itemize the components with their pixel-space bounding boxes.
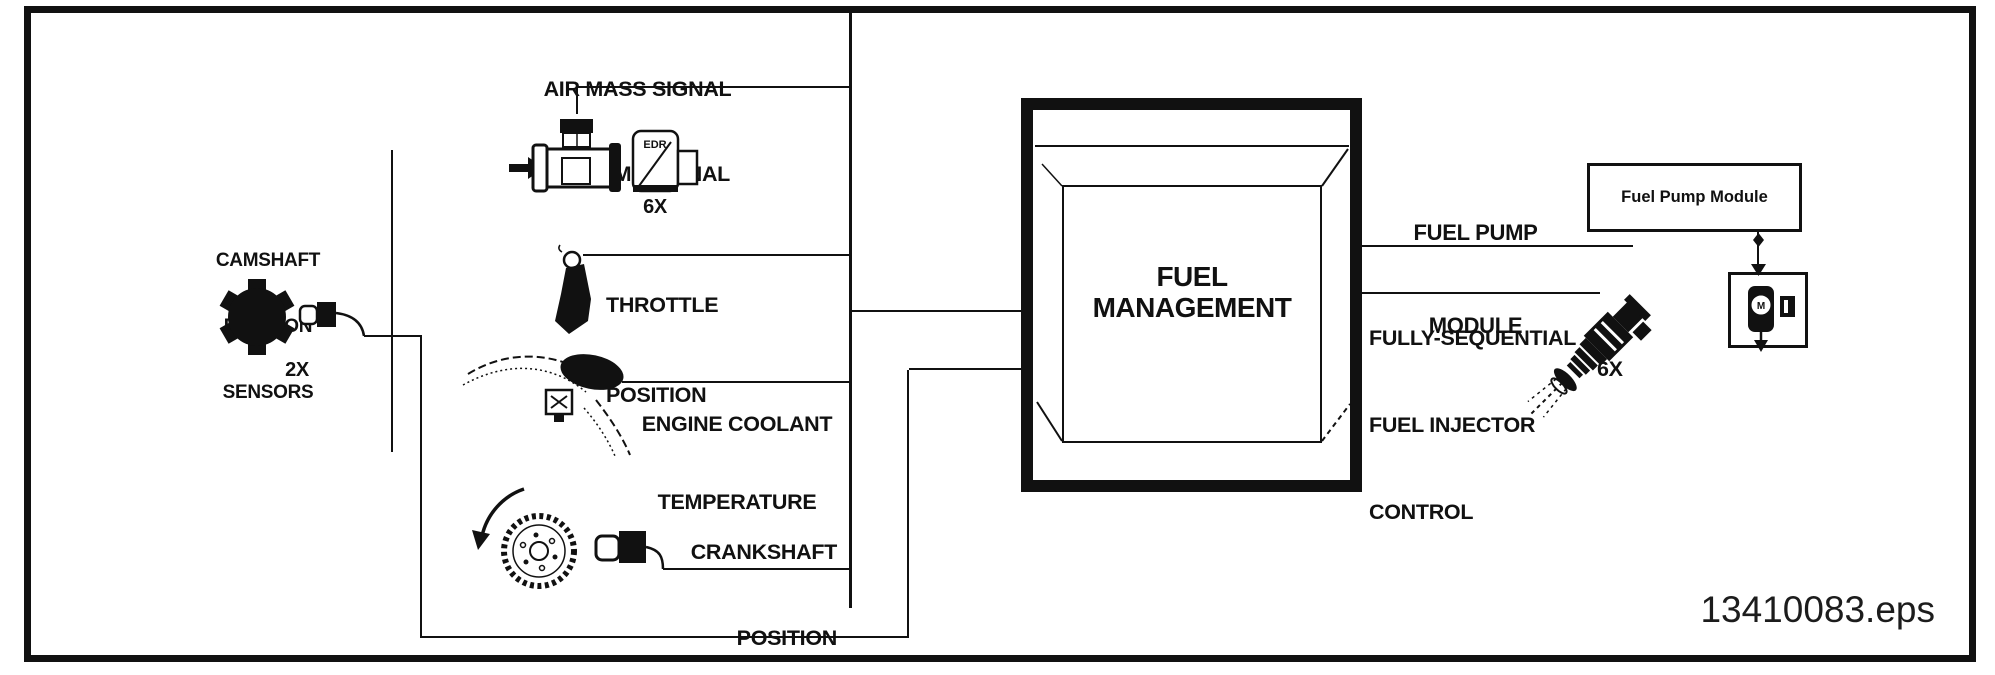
fuel-injector-icon xyxy=(1519,292,1659,432)
pump-outlet-arrow-icon xyxy=(1754,340,1768,352)
diagram-canvas: FUEL MANAGEMENT Fuel Pump Module AIR MAS… xyxy=(0,0,1995,675)
coolant-sensor-icon xyxy=(463,349,630,456)
edr-tag: EDR xyxy=(643,139,666,151)
diagram-artwork: EDR xyxy=(0,0,1995,675)
fuel-pump-icon: M xyxy=(1748,233,1795,352)
camshaft-sprocket-icon xyxy=(220,279,364,355)
throttle-icon xyxy=(555,245,591,334)
down-arrowhead-icon xyxy=(1751,264,1766,276)
ecu-corner-diagonals xyxy=(1037,149,1350,441)
crankshaft-plug-icon xyxy=(619,531,646,563)
air-mass-sensor-icon: EDR xyxy=(509,119,697,192)
camshaft-plug-icon xyxy=(317,302,336,327)
pump-motor-letter: M xyxy=(1757,301,1765,312)
crankshaft-wheel-icon xyxy=(472,489,663,586)
